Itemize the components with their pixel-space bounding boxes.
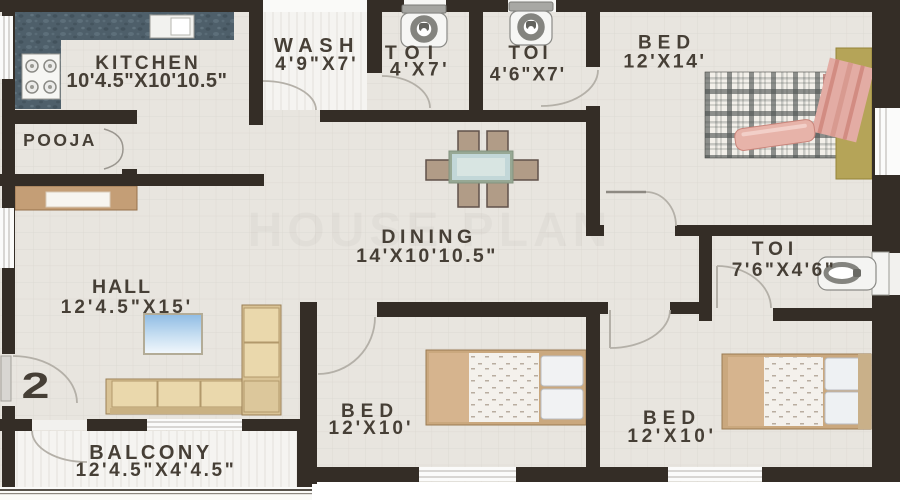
svg-text:4'X7': 4'X7' xyxy=(390,60,450,81)
svg-text:7'6"X4'6": 7'6"X4'6" xyxy=(732,260,837,281)
svg-text:4'9"X7': 4'9"X7' xyxy=(275,54,358,75)
svg-text:TOI: TOI xyxy=(752,239,798,260)
svg-text:2: 2 xyxy=(22,365,50,406)
svg-text:POOJA: POOJA xyxy=(23,130,97,150)
svg-text:10'4.5"X10'10.5": 10'4.5"X10'10.5" xyxy=(66,70,227,92)
svg-text:12'4.5"X15': 12'4.5"X15' xyxy=(61,297,193,318)
svg-text:TOI: TOI xyxy=(508,43,551,64)
svg-text:HALL: HALL xyxy=(92,276,152,298)
svg-text:14'X10'10.5": 14'X10'10.5" xyxy=(356,245,498,267)
svg-text:12'X10': 12'X10' xyxy=(329,418,414,439)
svg-text:12'4.5"X4'4.5": 12'4.5"X4'4.5" xyxy=(76,460,237,481)
svg-text:4'6"X7': 4'6"X7' xyxy=(490,65,566,86)
svg-text:12'X14': 12'X14' xyxy=(623,51,706,73)
svg-text:12'X10': 12'X10' xyxy=(627,426,716,447)
